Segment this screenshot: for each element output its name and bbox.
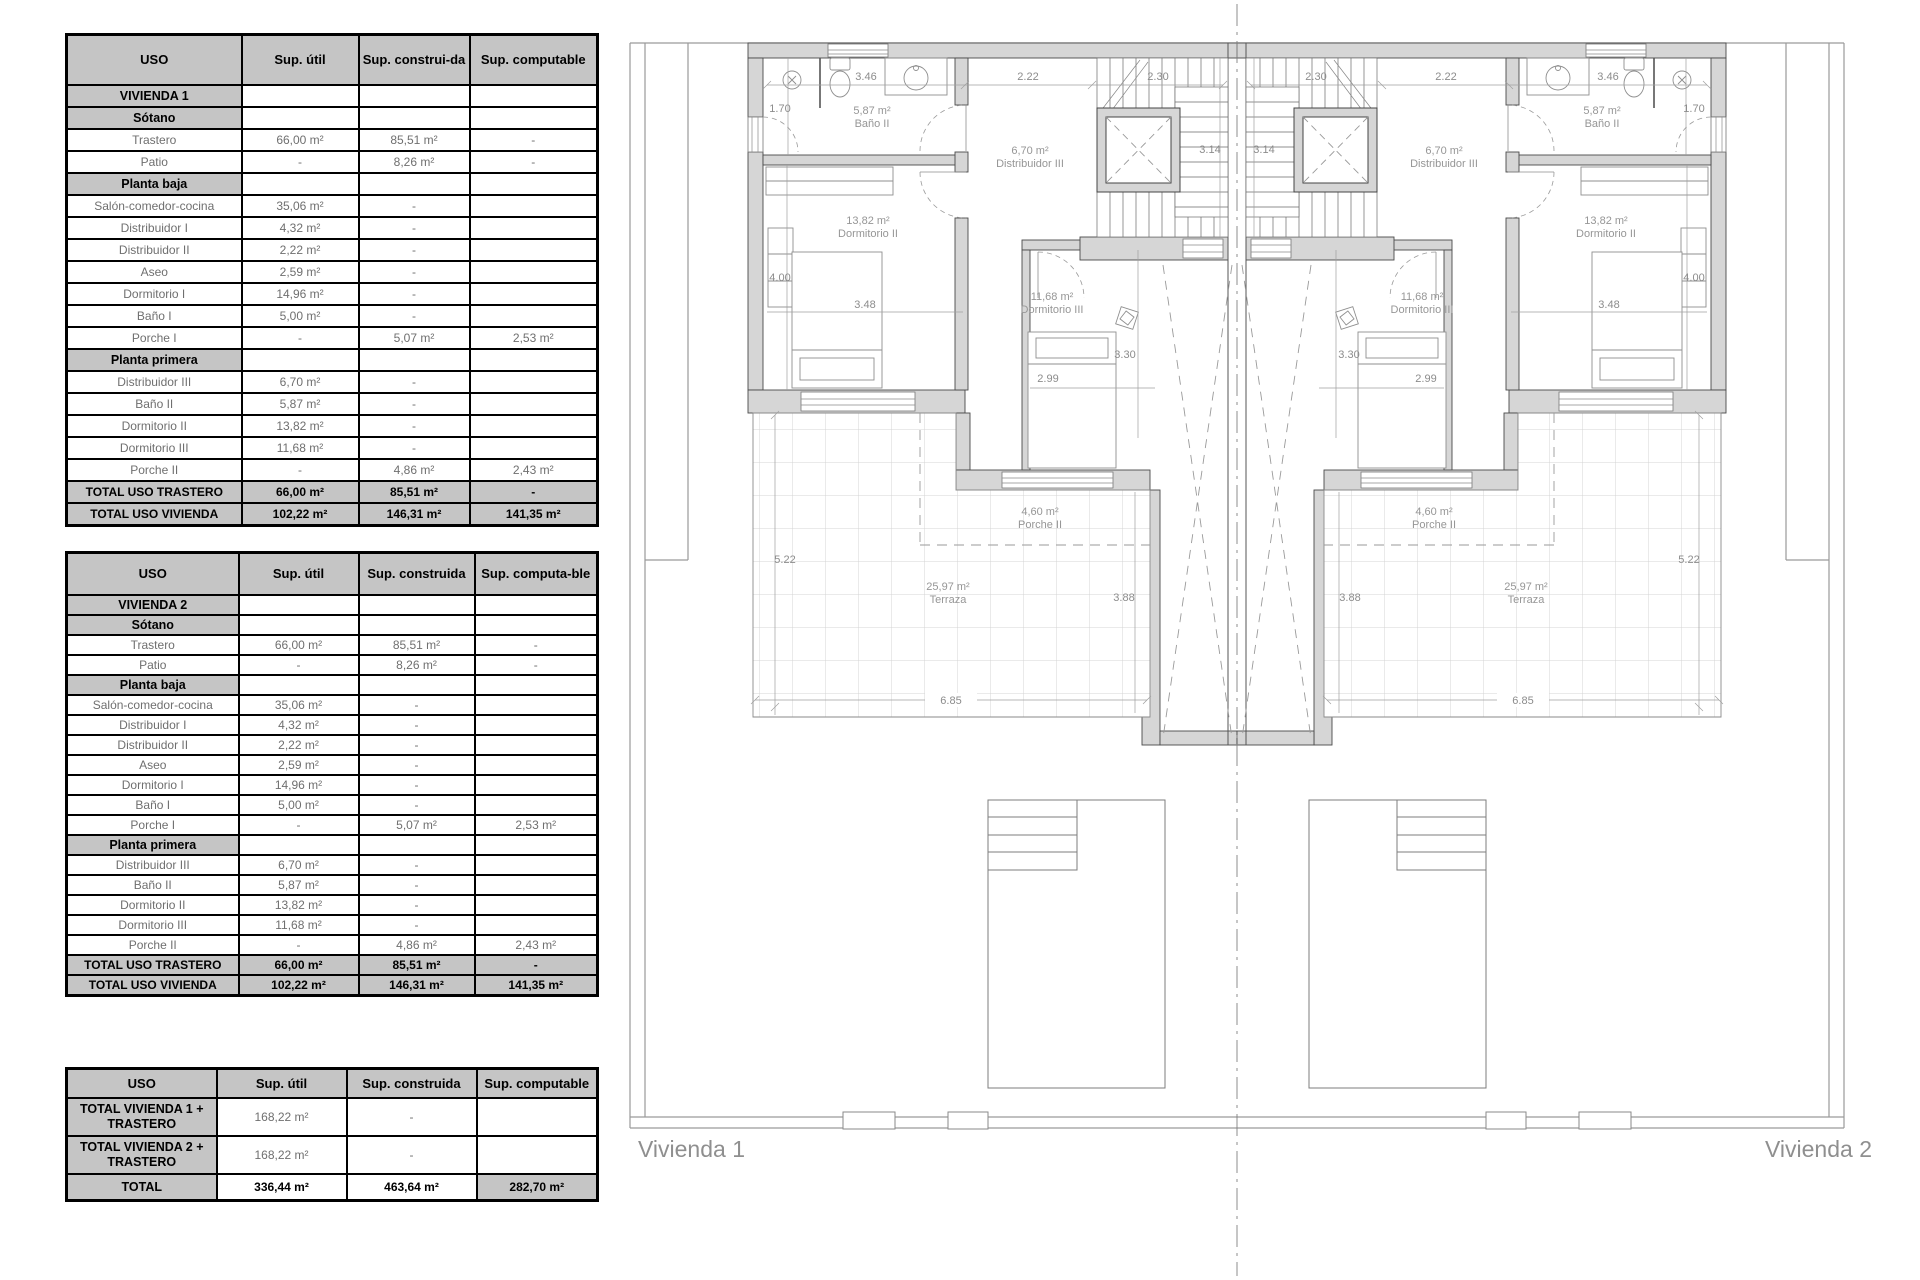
room-label-dormitorio2: 13,82 m² xyxy=(1584,215,1628,227)
dimension-label: 2.99 xyxy=(1037,373,1058,385)
dimension-label: 3.46 xyxy=(855,71,876,83)
svg-text:Distribuidor III: Distribuidor III xyxy=(1410,158,1478,170)
room-label-dormitorio3: 11,68 m² xyxy=(1401,291,1444,303)
dimension-label: 4.00 xyxy=(769,272,790,284)
dimension-label: 3.48 xyxy=(1598,299,1619,311)
dimension-label: 3.88 xyxy=(1339,592,1360,604)
room-label-distribuidor: 6,70 m² xyxy=(1425,145,1463,157)
dimension-label: 3.88 xyxy=(1113,592,1134,604)
room-label-terraza: 25,97 m² xyxy=(1504,581,1548,593)
room-label-dormitorio3: 11,68 m² xyxy=(1031,291,1074,303)
dimension-label: 2.22 xyxy=(1435,71,1456,83)
dimension-label: 3.14 xyxy=(1253,144,1274,156)
room-label-dormitorio2: 13,82 m² xyxy=(846,215,890,227)
floor-plan: 5,87 m² Baño II 6,70 m² Distribuidor III… xyxy=(0,0,1920,1280)
svg-text:Porche II: Porche II xyxy=(1412,519,1456,531)
svg-text:Distribuidor III: Distribuidor III xyxy=(996,158,1064,170)
svg-text:Baño II: Baño II xyxy=(1585,118,1620,130)
plan-title-vivienda2: Vivienda 2 xyxy=(1765,1136,1872,1162)
svg-text:Dormitorio III: Dormitorio III xyxy=(1021,304,1084,316)
svg-text:Dormitorio III: Dormitorio III xyxy=(1391,304,1454,316)
plan-title-vivienda1: Vivienda 1 xyxy=(638,1136,745,1162)
dimension-label: 3.14 xyxy=(1199,144,1220,156)
dimension-label: 3.48 xyxy=(854,299,875,311)
dimension-label: 3.30 xyxy=(1114,349,1135,361)
dimension-label: 2.22 xyxy=(1017,71,1038,83)
dimension-label: 5.22 xyxy=(1678,554,1699,566)
dimension-label: 2.30 xyxy=(1305,71,1326,83)
svg-text:Dormitorio II: Dormitorio II xyxy=(1576,228,1636,240)
svg-text:Dormitorio II: Dormitorio II xyxy=(838,228,898,240)
room-label-bano: 5,87 m² xyxy=(1583,105,1621,117)
room-label-porche: 4,60 m² xyxy=(1415,506,1453,518)
dimension-label: 5.22 xyxy=(774,554,795,566)
svg-text:Terraza: Terraza xyxy=(1508,594,1546,606)
dimension-label: 6.85 xyxy=(1512,695,1533,707)
room-label-distribuidor: 6,70 m² xyxy=(1011,145,1049,157)
room-label-bano: 5,87 m² xyxy=(853,105,891,117)
dimension-label: 1.70 xyxy=(769,103,790,115)
svg-text:Terraza: Terraza xyxy=(930,594,968,606)
dimension-label: 4.00 xyxy=(1683,272,1704,284)
dimension-label: 1.70 xyxy=(1683,103,1704,115)
room-label-porche: 4,60 m² xyxy=(1021,506,1059,518)
dimension-label: 2.30 xyxy=(1147,71,1168,83)
svg-text:Baño II: Baño II xyxy=(855,118,890,130)
svg-text:Porche II: Porche II xyxy=(1018,519,1062,531)
dimension-label: 3.46 xyxy=(1597,71,1618,83)
room-label-terraza: 25,97 m² xyxy=(926,581,970,593)
dimension-label: 2.99 xyxy=(1415,373,1436,385)
dimension-label: 3.30 xyxy=(1338,349,1359,361)
dimension-label: 6.85 xyxy=(940,695,961,707)
